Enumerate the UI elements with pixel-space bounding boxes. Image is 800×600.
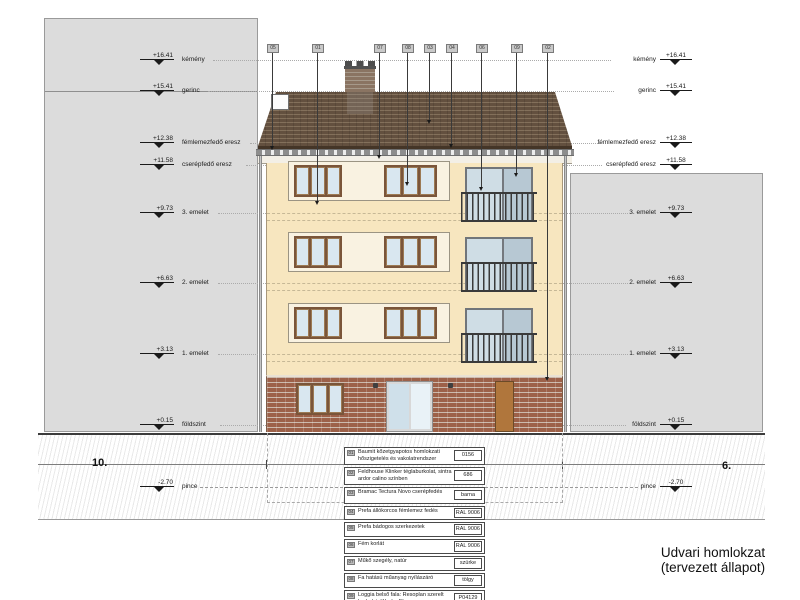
elevation-value: +16.41	[660, 52, 692, 60]
window-group	[384, 236, 437, 268]
legend-value: szürke	[454, 558, 482, 569]
legend-desc: Prefa állókorcos fémlemez fedés	[358, 508, 454, 519]
axis-label-right: 6.	[722, 460, 731, 472]
callout-arrow-icon	[427, 120, 431, 124]
legend-num-badge: 09	[347, 593, 355, 599]
window-pane	[420, 238, 435, 266]
elevation-value: +6.63	[140, 275, 174, 283]
materials-legend: 01 Baumit kőzetgyapotos homlokzati hőszi…	[344, 447, 485, 600]
brick-plinth	[266, 375, 563, 432]
legend-row: 03 Bramac Tectura Novo cserépfedés barna	[344, 487, 485, 504]
callout-leader	[379, 53, 380, 155]
callout-badge: 06	[476, 44, 488, 53]
legend-desc: Fém korlát	[358, 541, 454, 552]
elevation-label: gerinc	[182, 87, 200, 94]
legend-desc: Loggia belső fala: Resoplan szerelt burk…	[358, 592, 454, 600]
elevation-label: cserépfedő eresz	[182, 161, 232, 168]
window-group	[294, 307, 342, 339]
entrance-glass-door	[386, 381, 433, 432]
callout-arrow-icon	[270, 146, 274, 150]
level-triangle-icon	[670, 60, 680, 65]
window-pane	[296, 238, 309, 266]
window-pane	[420, 167, 435, 195]
title-line1: Udvari homlokzat	[628, 545, 798, 560]
callout-badge: 04	[446, 44, 458, 53]
elevation-label: pince	[528, 483, 656, 490]
elevation-value: -2.70	[660, 479, 692, 487]
door-glass-pane	[389, 384, 409, 429]
elevation-value: +16.41	[140, 52, 174, 60]
elevation-label: fémlemezfedő eresz	[528, 139, 656, 146]
roof-skylight	[271, 94, 289, 110]
legend-desc: Műkő szegély, natúr	[358, 558, 454, 569]
legend-row: 04 Prefa állókorcos fémlemez fedés RAL 9…	[344, 506, 485, 521]
callout-arrow-icon	[545, 377, 549, 381]
window-band-floor3	[288, 161, 450, 201]
level-triangle-icon	[670, 143, 680, 148]
wall-lamp	[448, 383, 453, 388]
legend-desc: Fa hatású műanyag nyílászáró	[358, 575, 454, 586]
window-pane	[403, 167, 418, 195]
elevation-value: +12.38	[140, 135, 174, 143]
legend-row: 07 Műkő szegély, natúr szürke	[344, 556, 485, 571]
elevation-value: +6.63	[660, 275, 692, 283]
callout-arrow-icon	[479, 187, 483, 191]
window-pane	[403, 309, 418, 337]
callout-badge: 05	[267, 44, 279, 53]
loggia-railing-floor3	[461, 192, 537, 222]
elevation-value: +0.15	[140, 417, 174, 425]
level-triangle-icon	[154, 143, 164, 148]
elevation-value: +0.15	[660, 417, 692, 425]
elevation-label: pince	[182, 483, 198, 490]
elevation-value: +11.58	[140, 157, 174, 165]
level-triangle-icon	[670, 425, 680, 430]
level-triangle-icon	[154, 165, 164, 170]
legend-value: RAL 9006	[454, 508, 482, 519]
legend-num-badge: 07	[347, 559, 355, 565]
elevation-label: cserépfedő eresz	[528, 161, 656, 168]
callout-leader	[516, 53, 517, 173]
level-triangle-icon	[670, 91, 680, 96]
callout-badge: 03	[424, 44, 436, 53]
window-group	[294, 236, 342, 268]
legend-desc: Baumit kőzetgyapotos homlokzati hősziget…	[358, 449, 454, 463]
window-pane	[296, 167, 309, 195]
level-triangle-icon	[154, 91, 164, 96]
window-pane	[296, 309, 309, 337]
window-pane	[311, 238, 324, 266]
downspout-right	[564, 156, 567, 432]
legend-value: RAL 9006	[454, 524, 482, 535]
callout-badge: 08	[402, 44, 414, 53]
elevation-label: fémlemezfedő eresz	[182, 139, 241, 146]
legend-num-badge: 08	[347, 576, 355, 582]
elevation-value: +3.13	[140, 346, 174, 354]
legend-value: 0156	[454, 450, 482, 461]
legend-desc: Bramac Tectura Novo cserépfedés	[358, 489, 454, 502]
axis-label-left: 10.	[92, 457, 107, 469]
callout-arrow-icon	[315, 201, 319, 205]
roof-tiles	[258, 92, 572, 146]
legend-desc: Prefa bádogos szerkezetek	[358, 524, 454, 535]
callout-badge: 07	[374, 44, 386, 53]
level-triangle-icon	[670, 165, 680, 170]
elevation-value: +3.13	[660, 346, 692, 354]
legend-num-badge: 02	[347, 470, 355, 476]
level-triangle-icon	[670, 487, 680, 492]
window-band-floor2	[288, 232, 450, 272]
window-group	[384, 307, 437, 339]
window-group	[384, 165, 437, 197]
elevation-label: 1. emelet	[182, 350, 209, 357]
loggia-railing-floor2	[461, 262, 537, 292]
level-triangle-icon	[154, 283, 164, 288]
window-pane	[298, 385, 311, 413]
level-triangle-icon	[670, 354, 680, 359]
elevation-drawing: 10. 6.	[0, 0, 800, 600]
level-triangle-icon	[154, 60, 164, 65]
window-band-floor1	[288, 303, 450, 343]
callout-arrow-icon	[514, 173, 518, 177]
drawing-title: Udvari homlokzat (tervezett állapot)	[628, 545, 798, 575]
callout-badge: 02	[542, 44, 554, 53]
legend-desc: Feldhouse Klinker téglaburkolat, sintra …	[358, 469, 454, 483]
callout-arrow-icon	[377, 155, 381, 159]
level-triangle-icon	[154, 354, 164, 359]
legend-row: 06 Fém korlát RAL 9006	[344, 539, 485, 554]
eaves-metal-band	[256, 149, 574, 156]
elevation-value: -2.70	[140, 479, 174, 487]
elevation-label: gerinc	[528, 87, 656, 94]
ground-floor-window	[296, 383, 344, 415]
window-pane	[386, 309, 401, 337]
window-pane	[329, 385, 342, 413]
legend-value: P04129	[454, 593, 482, 600]
chimney-roof-part	[347, 92, 373, 114]
elevation-label: 2. emelet	[528, 279, 656, 286]
elevation-label: földszint	[528, 421, 656, 428]
legend-row: 02 Feldhouse Klinker téglaburkolat, sint…	[344, 467, 485, 485]
downspout-left	[259, 156, 262, 432]
door-glass-pane	[411, 384, 431, 429]
legend-row: 09 Loggia belső fala: Resoplan szerelt b…	[344, 590, 485, 600]
callout-arrow-icon	[405, 182, 409, 186]
legend-value: 686	[454, 470, 482, 481]
legend-num-badge: 05	[347, 525, 355, 531]
elevation-label: kémény	[182, 56, 205, 63]
neighbor-building-left	[44, 18, 258, 432]
legend-num-badge: 04	[347, 509, 355, 515]
legend-num-badge: 03	[347, 490, 355, 496]
elevation-label: 3. emelet	[528, 209, 656, 216]
level-triangle-icon	[154, 487, 164, 492]
wood-door	[495, 381, 514, 432]
legend-num-badge: 06	[347, 542, 355, 548]
elevation-label: földszint	[182, 421, 206, 428]
level-triangle-icon	[154, 213, 164, 218]
elevation-value: +12.38	[660, 135, 692, 143]
window-pane	[327, 309, 340, 337]
loggia-railing-floor1	[461, 333, 537, 363]
elevation-label: 2. emelet	[182, 279, 209, 286]
elevation-label: 3. emelet	[182, 209, 209, 216]
legend-value: RAL 9006	[454, 541, 482, 552]
callout-leader	[407, 53, 408, 182]
callout-leader	[481, 53, 482, 187]
callout-leader	[272, 53, 273, 146]
elevation-value: +15.41	[140, 83, 174, 91]
legend-row: 08 Fa hatású műanyag nyílászáró tölgy	[344, 573, 485, 588]
legend-value: barna	[454, 490, 482, 501]
callout-leader	[429, 53, 430, 120]
elevation-value: +11.58	[660, 157, 692, 165]
callout-badge: 01	[312, 44, 324, 53]
elevation-label: kémény	[528, 56, 656, 63]
callout-leader	[317, 53, 318, 201]
elevation-value: +15.41	[660, 83, 692, 91]
legend-row: 05 Prefa bádogos szerkezetek RAL 9006	[344, 522, 485, 537]
callout-leader	[451, 53, 452, 144]
legend-value: tölgy	[454, 575, 482, 586]
window-pane	[327, 238, 340, 266]
title-line2: (tervezett állapot)	[628, 560, 798, 575]
window-pane	[311, 309, 324, 337]
window-pane	[403, 238, 418, 266]
elevation-label: 1. emelet	[528, 350, 656, 357]
callout-arrow-icon	[449, 144, 453, 148]
window-pane	[386, 167, 401, 195]
window-pane	[313, 385, 326, 413]
window-pane	[420, 309, 435, 337]
wall-lamp	[373, 383, 378, 388]
elevation-value: +9.73	[660, 205, 692, 213]
legend-num-badge: 01	[347, 450, 355, 456]
level-triangle-icon	[154, 425, 164, 430]
level-triangle-icon	[670, 283, 680, 288]
callout-badge: 09	[511, 44, 523, 53]
elevation-value: +9.73	[140, 205, 174, 213]
legend-row: 01 Baumit kőzetgyapotos homlokzati hőszi…	[344, 447, 485, 465]
window-pane	[386, 238, 401, 266]
window-group	[294, 165, 342, 197]
chimney	[345, 69, 375, 92]
level-triangle-icon	[670, 213, 680, 218]
window-pane	[327, 167, 340, 195]
